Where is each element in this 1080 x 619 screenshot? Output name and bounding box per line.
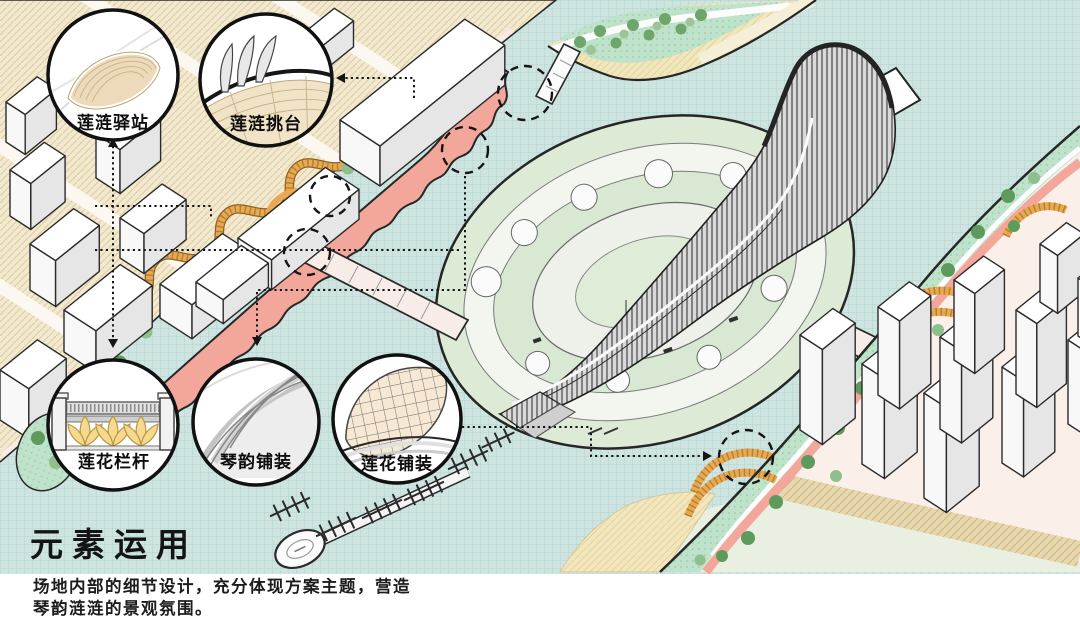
section-description-line1: 场地内部的细节设计，充分体现方案主题，营造 xyxy=(33,576,411,598)
section-description: 场地内部的细节设计，充分体现方案主题，营造 琴韵涟涟的景观氛围。 xyxy=(33,576,411,619)
callout-label-railing: 莲花栏杆 xyxy=(78,448,150,473)
callout-label-lotus-paving: 莲花铺装 xyxy=(361,450,433,475)
section-title: 元素运用 xyxy=(30,518,198,566)
callout-label-station: 莲涟驿站 xyxy=(77,109,149,134)
section-description-line2: 琴韵涟涟的景观氛围。 xyxy=(33,598,411,619)
callout-label-platform: 莲涟挑台 xyxy=(230,110,302,135)
callout-label-qin-paving: 琴韵铺装 xyxy=(220,448,292,473)
masterplan-canvas: 莲涟驿站 莲涟挑台 莲花栏杆 琴韵铺装 莲花铺装 元素运用 场地内部的细节设计，… xyxy=(0,0,1080,619)
